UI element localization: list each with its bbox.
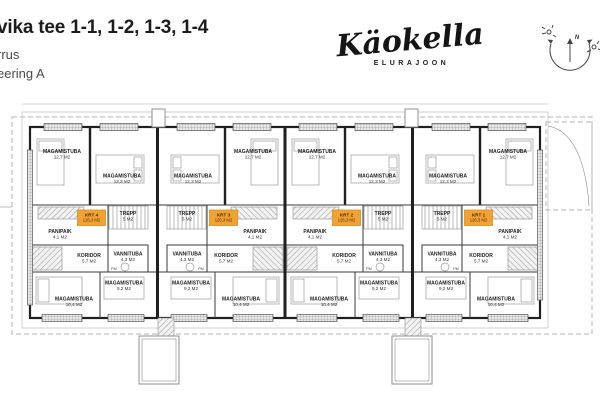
chimney [152, 109, 165, 127]
room-area: 12,7 M2 [54, 155, 71, 160]
washing-machine-label: PM [366, 267, 372, 271]
room-area: 9,2 M2 [372, 286, 386, 291]
floor-plan: MAGAMISTUBA 12,7 M2 MAGAMISTUBA 12,3 M2 … [0, 0, 600, 400]
room-area: 5,7 M2 [474, 259, 488, 264]
washing-machine-label: PM [111, 267, 117, 271]
room-area: 12,7 M2 [309, 155, 326, 160]
room-area: 5 M2 [378, 217, 389, 222]
room-area: 12,7 M2 [245, 155, 262, 160]
room-area: 4,1 M2 [53, 235, 67, 240]
left-gable-window-band [28, 150, 33, 305]
room-area: 10,4 M2 [233, 302, 250, 307]
room-area: 10,4 M2 [66, 302, 83, 307]
room-area: 10,4 M2 [321, 302, 338, 307]
room-area: 10,4 M2 [488, 302, 505, 307]
washing-machine-label: PM [198, 267, 204, 271]
room-area: 12,3 M2 [369, 179, 386, 184]
sun-icon [587, 41, 600, 52]
compass-icon: N [542, 25, 600, 70]
room-area: 5,7 M2 [219, 259, 233, 264]
room-area: 4,3 M2 [376, 257, 390, 262]
room-area: 12,3 M2 [440, 179, 457, 184]
room-area: 9,2 M2 [439, 286, 453, 291]
room-area: 4,3 M2 [180, 257, 194, 262]
room-area: 5,7 M2 [337, 259, 351, 264]
room-area: 5 M2 [437, 217, 448, 222]
room-area: 5 M2 [123, 217, 134, 222]
room-area: 5 M2 [182, 217, 193, 222]
room-area: 4,1 M2 [308, 235, 322, 240]
carport-outline [546, 122, 592, 210]
room-area: 12,3 M2 [185, 179, 202, 184]
room-area: 4,1 M2 [248, 235, 262, 240]
room-area: 9,2 M2 [184, 286, 198, 291]
apartment-badge-area: 126,3 M2 [470, 218, 488, 223]
compass-north-label: N [575, 35, 580, 41]
apartment-badge-area: 126,3 M2 [83, 218, 101, 223]
room-area: 12,7 M2 [500, 155, 517, 160]
room-area: 4,3 M2 [121, 257, 135, 262]
right-gable-window-band [538, 150, 543, 300]
apartment-badge-area: 126,3 M2 [338, 218, 356, 223]
apartment-badge-area: 126,3 M2 [215, 218, 233, 223]
room-area: 12,3 M2 [114, 179, 131, 184]
room-area: 4,3 M2 [435, 257, 449, 262]
chimney [405, 109, 418, 127]
washing-machine-label: PM [453, 267, 459, 271]
room-area: 9,2 M2 [117, 286, 131, 291]
room-area: 4,1 M2 [503, 235, 517, 240]
sun-icon [542, 25, 556, 37]
room-area: 5,7 M2 [82, 259, 96, 264]
